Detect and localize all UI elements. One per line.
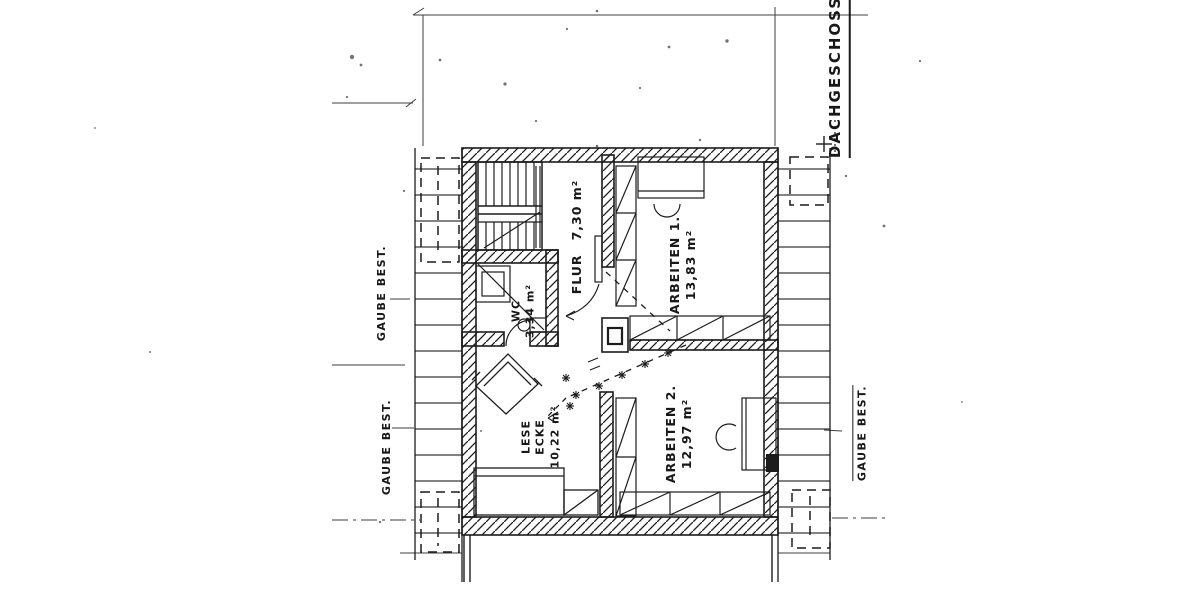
- desk-1: [638, 157, 704, 217]
- room-name-lese1: LESE: [520, 406, 534, 469]
- daybed: [474, 468, 598, 515]
- room-name-wc: WC: [510, 284, 524, 338]
- room-label-flur: FLUR7,30 m²: [569, 180, 585, 295]
- chair-2: [716, 424, 736, 450]
- annotation-gaube-left-top: GAUBE BEST.: [375, 245, 389, 341]
- sideboard-1: [630, 316, 770, 340]
- room-label-wc: WC 3,34 m²: [510, 284, 539, 338]
- staircase: [478, 162, 542, 250]
- wardrobe-1: [616, 166, 636, 306]
- room-name-flur: FLUR: [569, 254, 584, 294]
- floor-plan-drawing: [0, 0, 1200, 600]
- room-name-lese2: ECKE: [534, 406, 548, 469]
- wardrobe-2: [616, 398, 636, 516]
- star-marks: [562, 349, 672, 410]
- room-area-lese: 10,22 m²: [548, 406, 562, 469]
- room-label-arbeiten2: ARBEITEN 2. 12,97 m²: [663, 385, 696, 483]
- room-label-lese-ecke: LESE ECKE 10,22 m²: [520, 406, 563, 469]
- arbeiten2-furniture: [616, 398, 776, 516]
- room-name-arbeiten2: ARBEITEN 2.: [663, 385, 679, 483]
- room-area-arbeiten1: 13,83 m²: [683, 216, 699, 314]
- room-area-wc: 3,34 m²: [524, 284, 538, 338]
- roof-band-left: [415, 148, 462, 582]
- room-label-arbeiten1: ARBEITEN 1. 13,83 m²: [667, 216, 700, 314]
- room-name-arbeiten1: ARBEITEN 1.: [667, 216, 683, 314]
- drawing-title: DACHGESCHOSS: [826, 0, 851, 158]
- roof-band-right: [778, 148, 830, 582]
- wall-extensions-bottom: [464, 535, 772, 582]
- room-area-arbeiten2: 12,97 m²: [679, 385, 695, 483]
- annotation-gaube-right: GAUBE BEST.: [852, 385, 869, 481]
- floor-plan-page: DACHGESCHOSS FLUR7,30 m² ARBEITEN 1. 13,…: [0, 0, 1200, 600]
- room-area-flur: 7,30 m²: [569, 180, 584, 241]
- annotation-gaube-left-bottom: GAUBE BEST.: [380, 399, 394, 495]
- cabinet-2: [620, 492, 770, 515]
- washbasin: [476, 266, 510, 302]
